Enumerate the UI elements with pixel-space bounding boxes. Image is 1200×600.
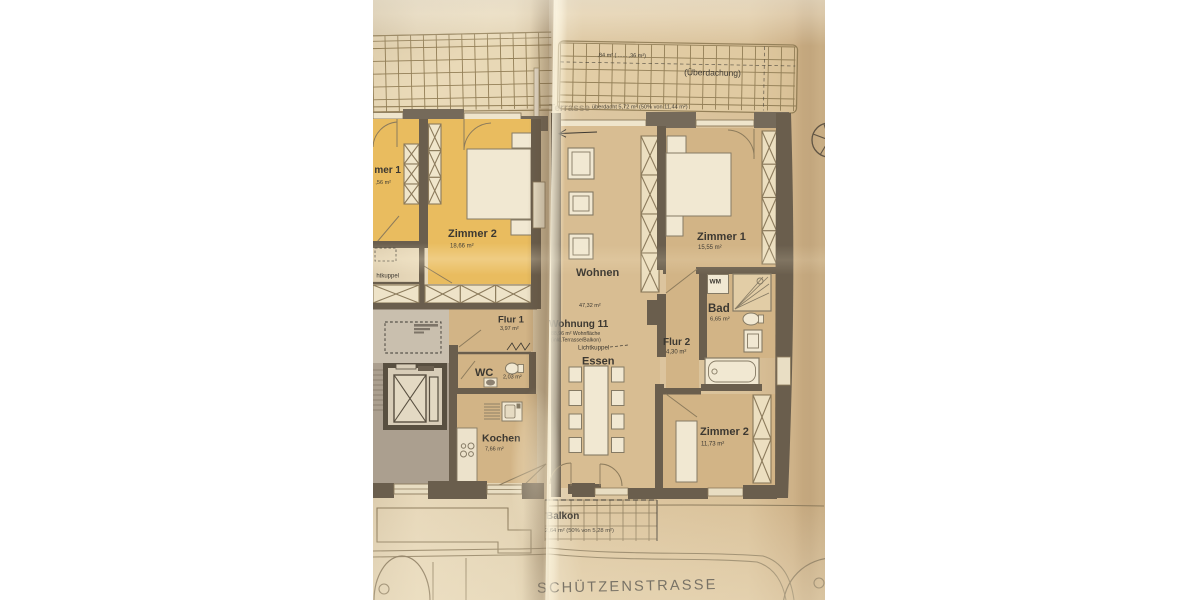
svg-text:6,65 m²: 6,65 m²	[710, 317, 730, 323]
svg-text:7,66 m²: 7,66 m²	[485, 447, 504, 453]
svg-text:,84 m² ( ...... ,36 m²): ,84 m² ( ...... ,36 m²)	[597, 53, 646, 60]
svg-text:3,97 m²: 3,97 m²	[500, 326, 519, 332]
svg-text:Zimmer 1: Zimmer 1	[697, 231, 746, 243]
svg-text:4,30 m²: 4,30 m²	[666, 350, 686, 356]
svg-text:2,03 m²: 2,03 m²	[503, 375, 522, 381]
svg-text:,56 m²: ,56 m²	[375, 180, 391, 186]
svg-text:mer 1: mer 1	[374, 165, 401, 176]
svg-text:Bad: Bad	[708, 303, 730, 315]
svg-text:Zimmer 2: Zimmer 2	[700, 426, 749, 438]
svg-text:Flur 1: Flur 1	[498, 315, 525, 326]
svg-text:Lichtkuppel: Lichtkuppel	[578, 345, 609, 352]
svg-text:WC: WC	[475, 367, 493, 379]
svg-text:47,32 m²: 47,32 m²	[579, 303, 601, 309]
svg-text:Flur 2: Flur 2	[663, 337, 691, 348]
svg-text:Zimmer 2: Zimmer 2	[448, 228, 497, 240]
svg-text:11,73 m²: 11,73 m²	[701, 442, 724, 448]
svg-text:(Überdachung): (Überdachung)	[684, 67, 741, 78]
svg-text:überdacht 5,72 m² (50% von 11,: überdacht 5,72 m² (50% von 11,44 m²)	[592, 105, 688, 111]
svg-text:WM: WM	[710, 279, 722, 286]
